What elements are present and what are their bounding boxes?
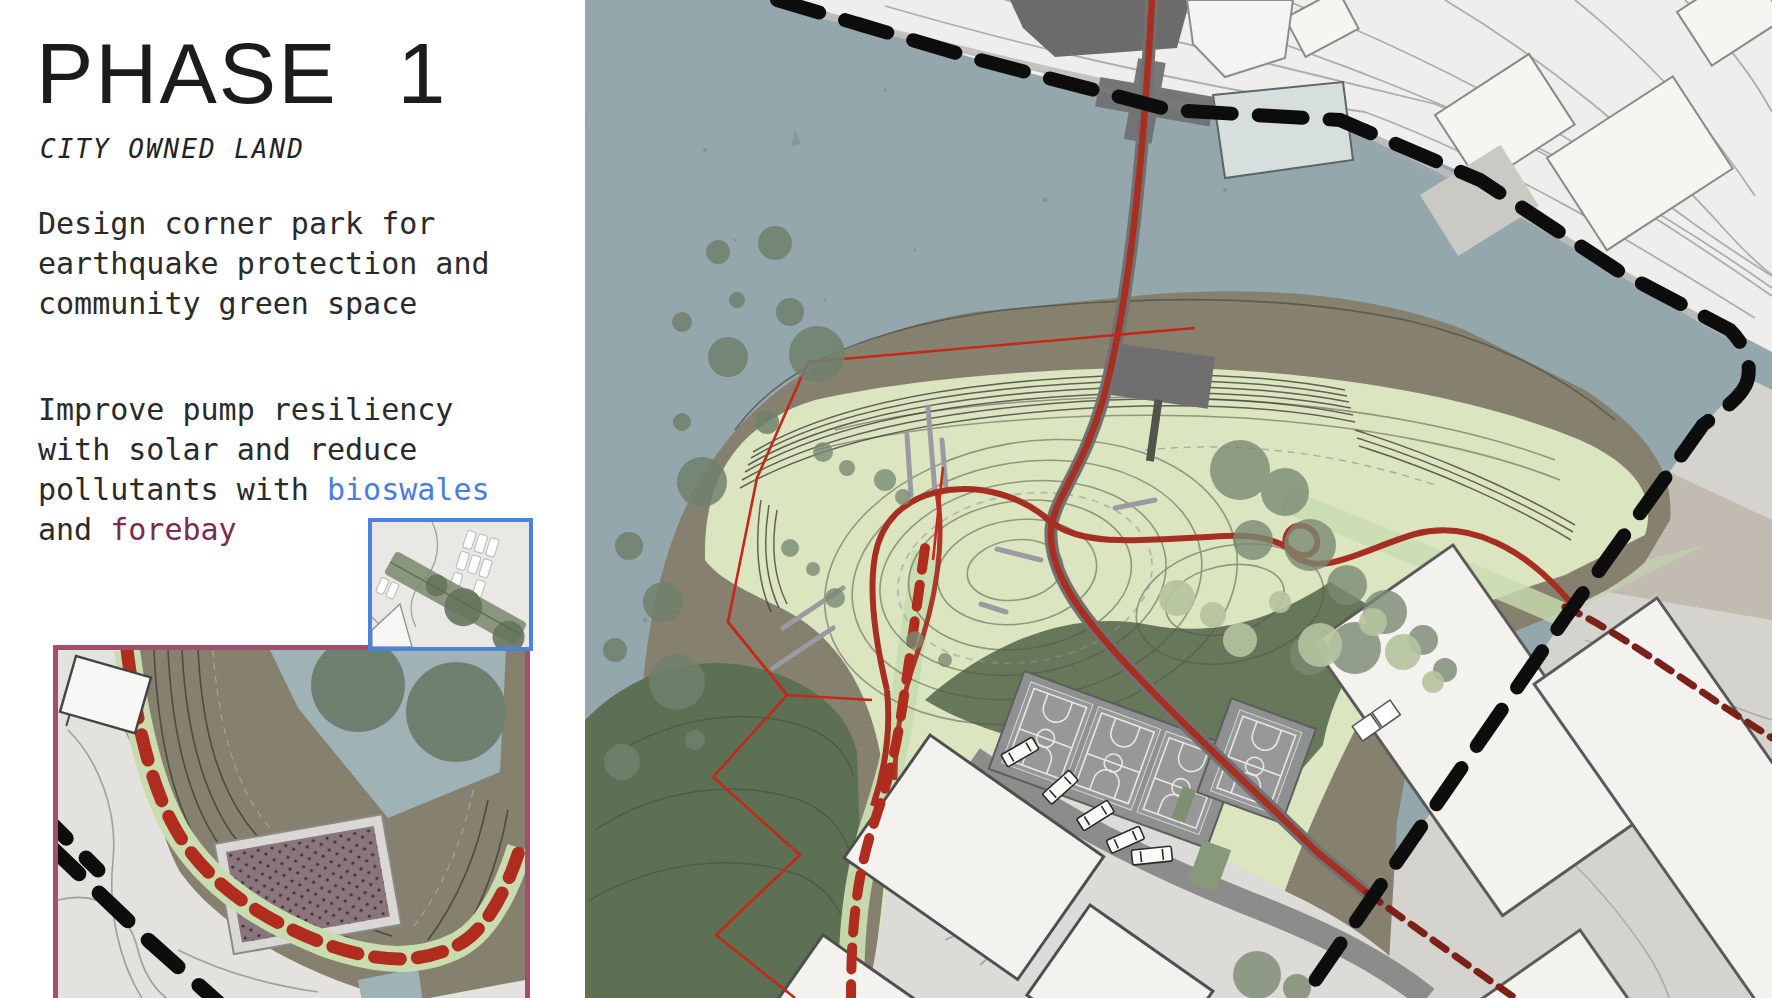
bioswale-inset-svg — [372, 522, 529, 647]
blue-roof-building — [1213, 82, 1353, 178]
bioswale-thumbnail-inset — [368, 518, 533, 651]
site-plan-map — [585, 0, 1772, 998]
inset-tree-2 — [406, 662, 506, 762]
forebay-keyword: forebay — [110, 512, 236, 547]
forebay-detail-inset — [53, 645, 530, 998]
phase1-board: PHASE 1 CITY OWNED LAND Design corner pa… — [0, 0, 1772, 998]
site-plan-svg — [585, 0, 1772, 998]
page-title: PHASE 1 — [36, 28, 447, 118]
paragraph-1-text: Design corner park for earthquake protec… — [38, 206, 490, 321]
page-subtitle: CITY OWNED LAND — [40, 134, 305, 164]
paragraph-design-park: Design corner park for earthquake protec… — [38, 204, 558, 324]
bioswales-keyword: bioswales — [327, 472, 490, 507]
forebay-inset-svg — [58, 650, 525, 998]
paragraph-2-mid: and — [38, 512, 110, 547]
